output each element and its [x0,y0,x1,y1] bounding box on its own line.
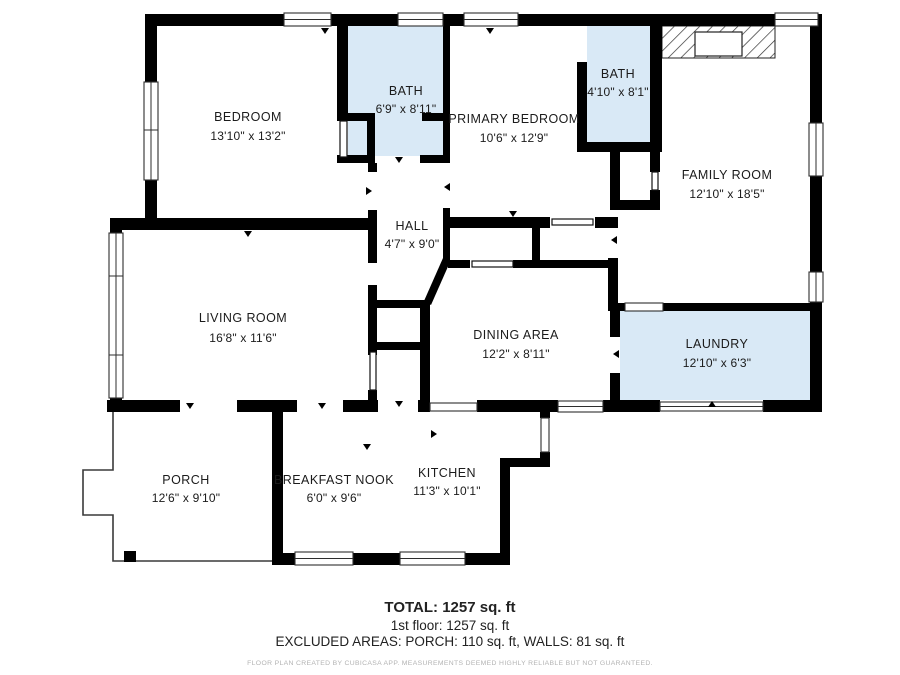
excluded-areas-text: EXCLUDED AREAS: PORCH: 110 sq. ft, WALLS… [0,634,900,651]
room-label-living-room: LIVING ROOM [199,311,287,325]
room-dims-porch: 12'6" x 9'10" [152,491,220,505]
summary-footer: TOTAL: 1257 sq. ft 1st floor: 1257 sq. f… [0,599,900,667]
room-dims-living-room: 16'8" x 11'6" [209,331,277,345]
room-label-bedroom: BEDROOM [214,110,282,124]
room-label-laundry: LAUNDRY [686,337,749,351]
room-dims-family-room: 12'10" x 18'5" [689,187,764,201]
room-label-porch: PORCH [162,473,209,487]
room-dims-bedroom: 13'10" x 13'2" [210,129,285,143]
room-label-bath-right: BATH [601,67,635,81]
porch-outline [83,412,272,562]
room-label-breakfast-nook: BREAKFAST NOOK [274,473,394,487]
room-label-kitchen: KITCHEN [418,466,476,480]
room-dims-hall: 4'7" x 9'0" [385,237,440,251]
room-dims-laundry: 12'10" x 6'3" [683,356,751,370]
room-dims-bath-upper: 6'9" x 8'11" [376,102,437,116]
room-label-dining-area: DINING AREA [473,328,559,342]
room-dims-kitchen: 11'3" x 10'1" [413,484,481,498]
total-area-text: TOTAL: 1257 sq. ft [0,599,900,618]
floor-plan-page: BEDROOM 13'10" x 13'2" BATH 6'9" x 8'11"… [0,0,900,675]
room-dims-dining-area: 12'2" x 8'11" [482,347,550,361]
room-dims-primary-bedroom: 10'6" x 12'9" [480,131,548,145]
room-dims-bath-right: 4'10" x 8'1" [587,85,649,99]
fireplace-hatch [662,26,775,58]
room-label-primary-bedroom: PRIMARY BEDROOM [448,112,579,126]
room-labels: BEDROOM 13'10" x 13'2" BATH 6'9" x 8'11"… [152,67,773,505]
walls [107,14,822,565]
disclaimer-text: FLOOR PLAN CREATED BY CUBICASA APP. MEAS… [0,660,900,667]
room-label-family-room: FAMILY ROOM [682,168,773,182]
room-label-hall: HALL [395,219,428,233]
first-floor-area-text: 1st floor: 1257 sq. ft [0,618,900,634]
windows [109,13,823,565]
room-label-bath-upper: BATH [389,84,423,98]
room-dims-breakfast-nook: 6'0" x 9'6" [307,491,362,505]
floor-plan-drawing: BEDROOM 13'10" x 13'2" BATH 6'9" x 8'11"… [0,0,900,590]
